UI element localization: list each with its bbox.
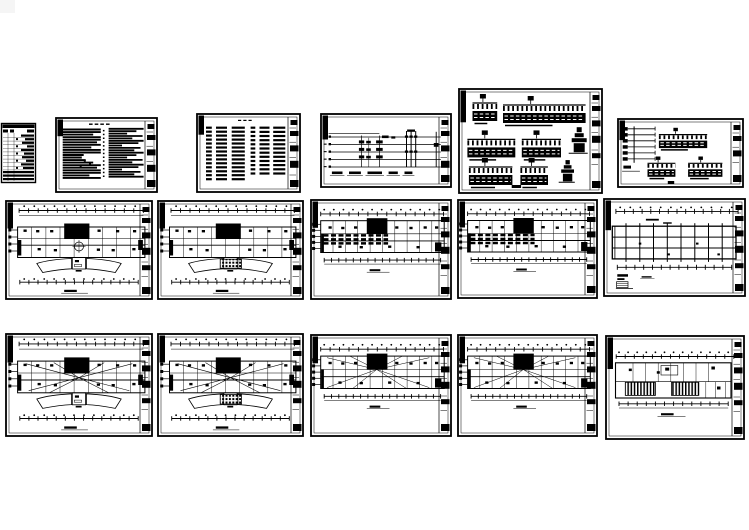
sheets-overview-svg [0, 0, 749, 530]
sheet-panels-small [618, 119, 743, 187]
sheet-grid-plan [604, 199, 745, 296]
sheet-roof-plan [606, 336, 744, 439]
drawing-set-overview [0, 0, 749, 530]
sheet-plan-mid-3 [311, 200, 451, 299]
sheet-plan-mid-1 [6, 201, 152, 299]
sheet-index-table [2, 124, 36, 183]
sheet-plan-mid-2 [158, 201, 303, 299]
sheet-plan-bot-2 [158, 334, 303, 436]
sheet-plan-bot-4 [458, 335, 597, 436]
sheet-plan-mid-4 [458, 200, 597, 298]
sheet-plan-bot-1 [6, 334, 152, 436]
sheet-riser-diagram [321, 114, 451, 187]
sheet-design-notes [56, 118, 157, 192]
sheet-legend-schedule [197, 114, 300, 192]
sheet-plan-bot-3 [311, 335, 451, 436]
sheet-panels-large [459, 89, 602, 193]
sheet-corner-thumb [0, 0, 15, 13]
